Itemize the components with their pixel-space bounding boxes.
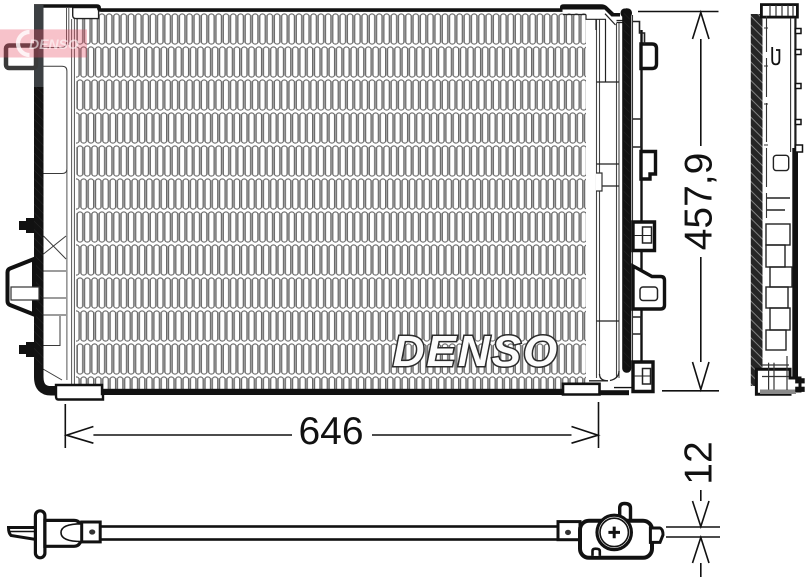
svg-text:DENSO: DENSO [393, 327, 559, 376]
svg-text:12: 12 [678, 441, 721, 484]
svg-text:457,9: 457,9 [678, 153, 721, 251]
svg-text:DENSO: DENSO [29, 36, 79, 52]
svg-text:646: 646 [298, 410, 363, 453]
